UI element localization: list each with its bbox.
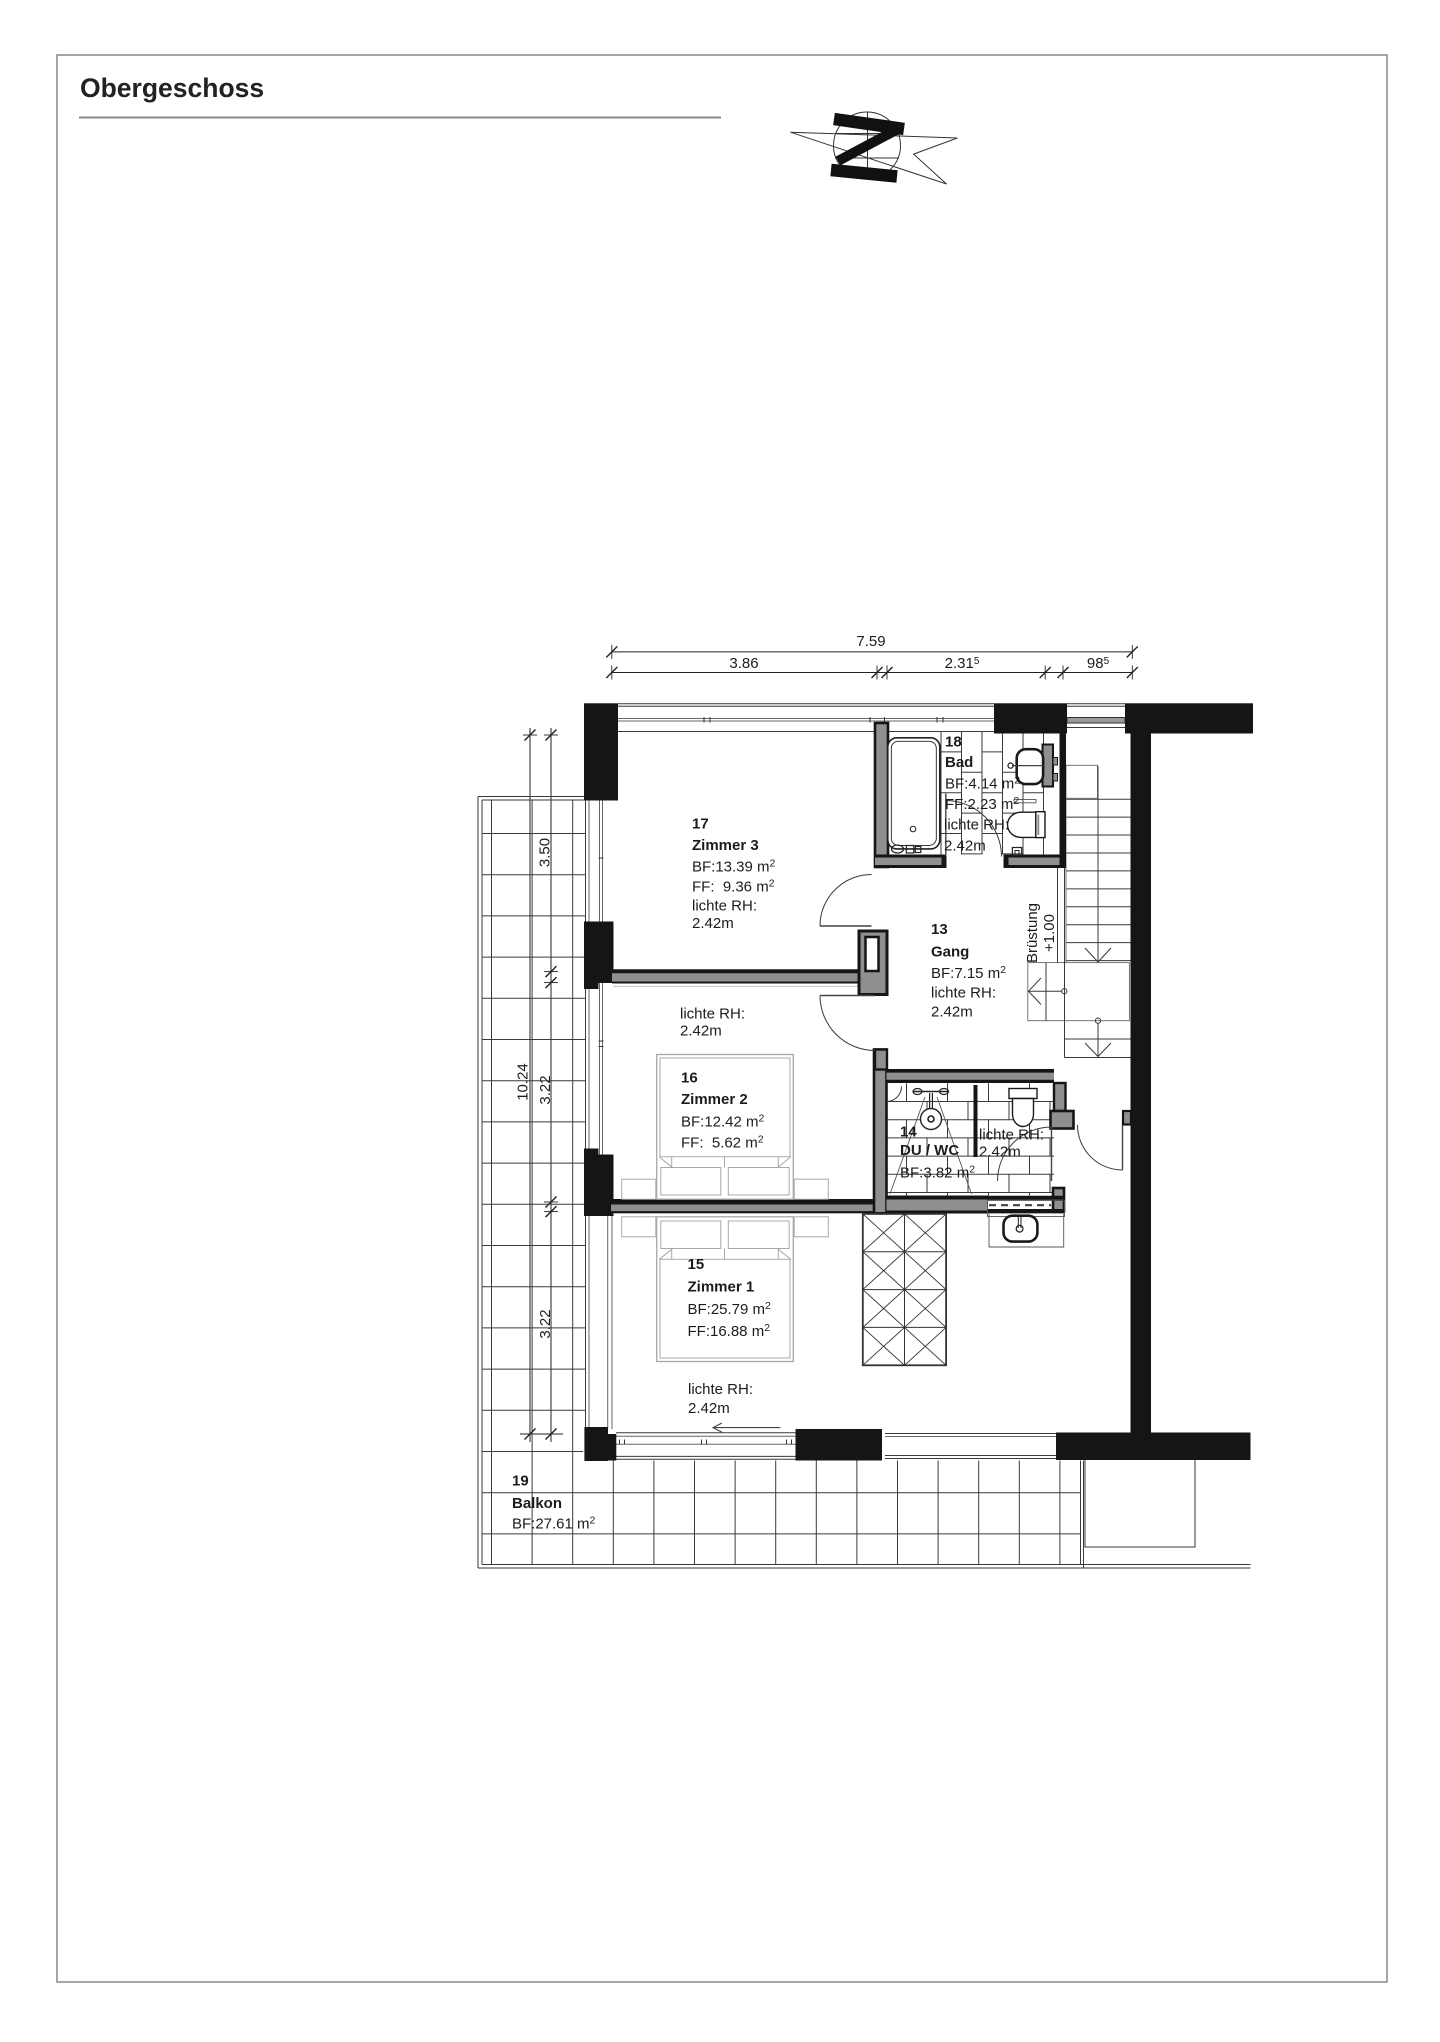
svg-text:BF:25.79 m2: BF:25.79 m2	[688, 1300, 772, 1318]
svg-text:lichte RH:: lichte RH:	[692, 898, 757, 915]
svg-text:BF:27.61 m2: BF:27.61 m2	[512, 1515, 596, 1533]
svg-text:Bad: Bad	[945, 754, 973, 771]
svg-text:2.42m: 2.42m	[944, 837, 986, 854]
svg-text:FF: 5.62 m2: FF: 5.62 m2	[681, 1134, 764, 1152]
svg-text:FF:2.23 m2: FF:2.23 m2	[945, 795, 1019, 813]
svg-text:15: 15	[688, 1256, 705, 1273]
svg-text:Zimmer 2: Zimmer 2	[681, 1091, 748, 1108]
svg-text:10.24: 10.24	[515, 1063, 532, 1101]
svg-text:BF:13.39 m2: BF:13.39 m2	[692, 857, 776, 875]
svg-text:14: 14	[900, 1123, 917, 1140]
svg-text:17: 17	[692, 816, 709, 833]
svg-text:+1.00: +1.00	[1041, 914, 1058, 952]
svg-text:7.59: 7.59	[856, 633, 885, 650]
svg-text:FF: 9.36 m2: FF: 9.36 m2	[692, 878, 775, 896]
svg-text:19: 19	[512, 1472, 529, 1489]
svg-text:Gang: Gang	[931, 943, 969, 960]
svg-text:2.42m: 2.42m	[680, 1023, 722, 1040]
svg-text:2.42m: 2.42m	[979, 1144, 1021, 1161]
svg-text:Balkon: Balkon	[512, 1495, 562, 1512]
svg-text:lichte RH:: lichte RH:	[688, 1381, 753, 1398]
svg-text:BF:12.42 m2: BF:12.42 m2	[681, 1112, 765, 1130]
svg-text:2.42m: 2.42m	[688, 1400, 730, 1417]
svg-text:lichte RH:: lichte RH:	[944, 817, 1009, 834]
svg-text:3.22: 3.22	[537, 1309, 554, 1338]
svg-text:16: 16	[681, 1070, 698, 1087]
svg-text:BF:7.15 m2: BF:7.15 m2	[931, 964, 1006, 982]
svg-text:BF:3.82 m2: BF:3.82 m2	[900, 1163, 975, 1181]
svg-text:Zimmer 3: Zimmer 3	[692, 837, 759, 854]
svg-text:BF:4.14 m2: BF:4.14 m2	[945, 774, 1020, 792]
svg-text:3.50: 3.50	[537, 838, 554, 867]
svg-text:lichte RH:: lichte RH:	[931, 984, 996, 1001]
svg-text:Obergeschoss: Obergeschoss	[80, 73, 264, 103]
svg-text:lichte RH:: lichte RH:	[680, 1006, 745, 1023]
svg-text:DU / WC: DU / WC	[900, 1142, 959, 1159]
svg-text:2.42m: 2.42m	[692, 915, 734, 932]
svg-text:13: 13	[931, 921, 948, 938]
svg-text:18: 18	[945, 733, 962, 750]
svg-text:FF:16.88 m2: FF:16.88 m2	[688, 1322, 771, 1340]
svg-text:3.22: 3.22	[537, 1075, 554, 1104]
svg-text:Brüstung: Brüstung	[1024, 903, 1041, 963]
svg-text:lichte RH:: lichte RH:	[979, 1127, 1044, 1144]
svg-text:2.42m: 2.42m	[931, 1004, 973, 1021]
svg-text:Zimmer 1: Zimmer 1	[688, 1279, 755, 1296]
svg-text:3.86: 3.86	[729, 655, 758, 672]
